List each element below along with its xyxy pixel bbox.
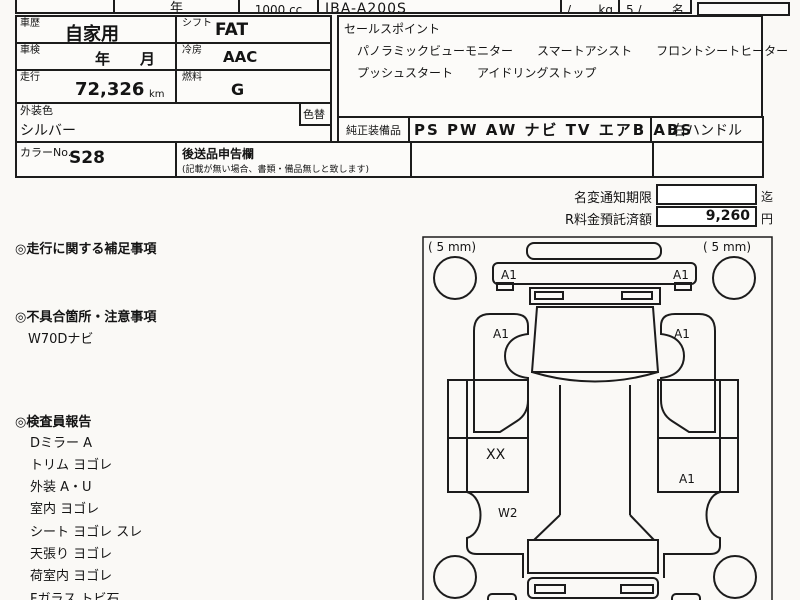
mileage-value: 72,326 — [75, 79, 144, 100]
hood-strip — [527, 243, 661, 259]
taillight-left — [535, 585, 565, 593]
spec-row-mileage: 走行 72,326 km 燃料 G — [17, 71, 330, 104]
r-fee-label: R料金預託済額 — [480, 209, 652, 228]
inspector-title: ◎検査員報告 — [15, 411, 91, 430]
equipment-label: 純正装備品 — [339, 118, 410, 141]
ac-value: AAC — [223, 48, 257, 66]
roof-sides — [560, 385, 630, 515]
damage-code-fender-right: A1 — [674, 327, 690, 341]
color-change-cell: 色替 — [299, 104, 330, 126]
weight-slash: / — [567, 0, 571, 12]
grille — [530, 288, 660, 304]
taillight-right — [621, 585, 653, 593]
mileage-label: 走行 — [20, 72, 40, 83]
damage-code-rear-left: W2 — [498, 506, 518, 520]
color-change-label: 色替 — [303, 108, 325, 121]
mileage-note-title: ◎走行に関する補足事項 — [15, 238, 156, 257]
wheel-rear-right — [714, 556, 756, 598]
inspector-item: Fガラス トビ石 — [30, 588, 119, 600]
top-displacement-cell: 1000 cc — [238, 0, 319, 14]
fuel-label: 燃料 — [182, 72, 202, 83]
spec-row-color: 外装色 シルバー 色替 — [17, 104, 330, 141]
fuel-value: G — [231, 80, 244, 99]
ac-cell: 冷房 AAC — [179, 44, 330, 69]
bottom-tab-right — [672, 594, 700, 600]
capacity-unit: 名 — [672, 0, 684, 12]
damage-code-bumper-right: A1 — [673, 268, 689, 282]
equipment-value: PS PW AW ナビ TV エアB ABS — [410, 118, 652, 141]
inspector-item: Dミラー A — [30, 432, 92, 451]
ext-color-value: シルバー — [20, 120, 76, 140]
year-label: 年 — [170, 1, 183, 14]
displacement-value: 1000 cc — [255, 3, 303, 14]
history-value: 自家用 — [65, 20, 119, 46]
top-right-small-box — [697, 2, 790, 16]
damage-code-door-left: XX — [486, 447, 506, 463]
mileage-cell: 走行 72,326 km — [17, 71, 177, 102]
shift-cell: シフト FAT — [179, 17, 330, 42]
handle-cell: 右ハンドル — [652, 118, 762, 141]
inspection-value: 年 月 — [95, 48, 155, 69]
sales-points-label: セールスポイント — [344, 20, 440, 37]
color-no-label: カラーNo. — [20, 147, 71, 158]
headlight-right — [622, 292, 652, 299]
rear-window-flare — [534, 515, 654, 540]
bottom-tab-left — [488, 594, 516, 600]
later-items-note: (記載が無い場合、書類・備品無しと致します) — [182, 162, 410, 175]
inspector-item: シート ヨゴレ スレ — [30, 521, 142, 540]
top-blank-box — [15, 0, 115, 14]
inspector-item: 室内 ヨゴレ — [30, 498, 99, 517]
windshield — [532, 307, 658, 372]
r-fee-value: 9,260 — [706, 208, 750, 224]
spec-row-history: 車歴 自家用 シフト FAT — [17, 17, 330, 44]
fuel-cell: 燃料 G — [179, 71, 330, 102]
color-no-cell: カラーNo. S28 — [17, 143, 177, 176]
inspection-cell: 車検 年 月 — [17, 44, 177, 69]
inspector-item: 外装 A・U — [30, 476, 92, 495]
sales-points-line2: プッシュスタート アイドリングストップ — [357, 64, 596, 81]
top-weight-cell: /kg — [560, 0, 620, 14]
wheel-front-right — [713, 257, 755, 299]
r-fee-suffix: 円 — [761, 210, 773, 227]
side-panel-right — [658, 380, 738, 492]
color-no-row: カラーNo. S28 後送品申告欄 (記載が無い場合、書類・備品無しと致します) — [15, 141, 764, 178]
spec-block: 車歴 自家用 シフト FAT 車検 年 月 冷房 AAC 走行 72,326 — [15, 15, 332, 143]
empty-cell-mid — [412, 143, 654, 176]
name-change-box — [656, 184, 757, 205]
later-items-label: 後送品申告欄 — [182, 145, 410, 162]
defect-title: ◎不具合箇所・注意事項 — [15, 306, 156, 325]
shift-label: シフト — [182, 18, 212, 29]
name-change-label: 名変通知期限 — [480, 187, 652, 206]
car-damage-diagram: ( 5 mm) ( 5 mm) A1 A1 A1 A1 XX W2 A1 — [422, 236, 774, 600]
front-bumper — [493, 263, 696, 284]
wheel-rear-left — [434, 556, 476, 598]
inspector-item: 荷室内 ヨゴレ — [30, 565, 112, 584]
defect-item: W70Dナビ — [28, 328, 93, 347]
r-fee-box: 9,260 — [656, 206, 757, 227]
model-code: JBA-A200S — [325, 1, 407, 14]
top-capacity-cell: 5 /名 — [618, 0, 692, 14]
side-panel-left — [448, 380, 528, 492]
auction-sheet: 年 1000 cc JBA-A200S /kg 5 /名 車歴 自家用 シフト … — [0, 0, 800, 600]
tire-depth-front-left: ( 5 mm) — [428, 240, 476, 254]
inspector-item: トリム ヨゴレ — [30, 454, 112, 473]
wheel-arch-rear-right — [664, 492, 720, 578]
shift-value: FAT — [215, 20, 248, 40]
history-label: 車歴 — [20, 18, 40, 29]
tire-depth-front-right: ( 5 mm) — [703, 240, 751, 254]
weight-unit: kg — [598, 0, 613, 12]
spec-row-inspection: 車検 年 月 冷房 AAC — [17, 44, 330, 71]
history-cell: 車歴 自家用 — [17, 17, 177, 42]
mileage-unit: km — [149, 89, 165, 100]
ac-label: 冷房 — [182, 45, 202, 56]
top-year-cell: 年 — [113, 0, 240, 14]
damage-code-bumper-left: A1 — [501, 268, 517, 282]
sales-points-box: セールスポイント パノラミックビューモニター スマートアシスト フロントシートヒ… — [337, 15, 763, 118]
damage-code-fender-left: A1 — [493, 327, 509, 341]
headlight-left — [535, 292, 563, 299]
equipment-row: 純正装備品 PS PW AW ナビ TV エアB ABS 右ハンドル — [337, 116, 764, 143]
name-change-suffix: 迄 — [761, 188, 773, 205]
wheel-arch-rear-left — [467, 492, 523, 578]
inspection-label: 車検 — [20, 45, 40, 56]
empty-cell-right — [654, 143, 762, 176]
later-items-cell: 後送品申告欄 (記載が無い場合、書類・備品無しと致します) — [177, 143, 412, 176]
ext-color-label: 外装色 — [20, 105, 53, 116]
rear-bumper — [528, 578, 658, 598]
sales-points-line1: パノラミックビューモニター スマートアシスト フロントシートヒーター — [357, 42, 788, 59]
damage-code-quarter-right: A1 — [679, 472, 695, 486]
color-no-value: S28 — [69, 148, 105, 168]
top-model-cell: JBA-A200S — [317, 0, 562, 14]
rear-panel — [528, 540, 658, 573]
inspector-item: 天張り ヨゴレ — [30, 543, 112, 562]
roof-front-arc — [532, 372, 658, 382]
wheel-front-left — [434, 257, 476, 299]
capacity-value: 5 / — [626, 0, 642, 12]
